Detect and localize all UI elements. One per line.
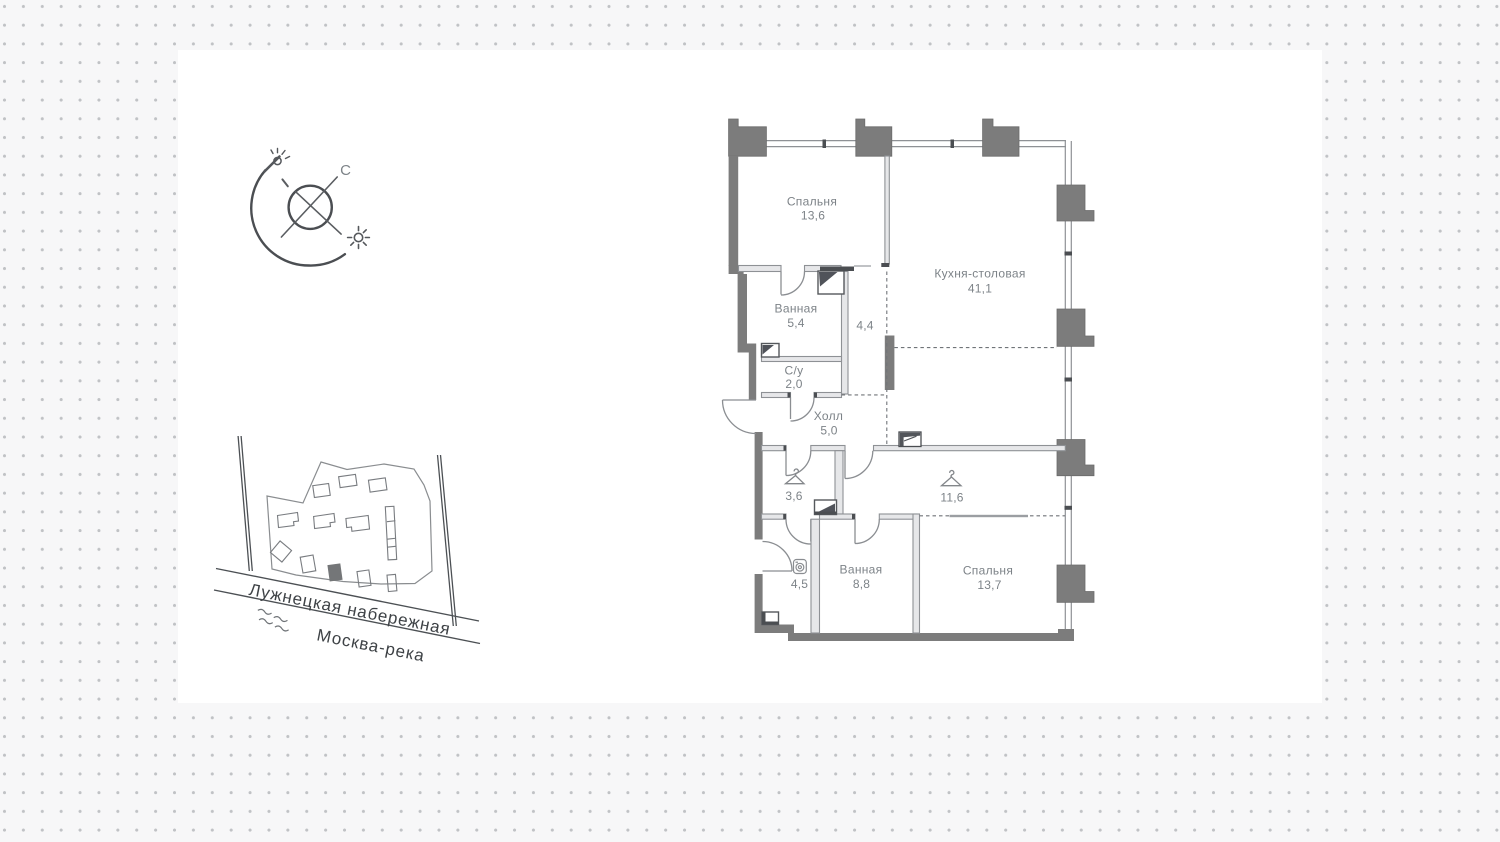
- svg-text:Спальня: Спальня: [787, 195, 837, 209]
- svg-text:13,6: 13,6: [801, 209, 825, 223]
- svg-text:41,1: 41,1: [968, 282, 992, 296]
- svg-text:Холл: Холл: [814, 409, 843, 423]
- svg-text:Спальня: Спальня: [963, 564, 1013, 578]
- svg-text:8,8: 8,8: [853, 577, 870, 591]
- svg-text:Ванная: Ванная: [840, 563, 883, 577]
- svg-text:2,0: 2,0: [785, 377, 802, 391]
- svg-text:3,6: 3,6: [785, 489, 802, 503]
- svg-text:4,4: 4,4: [856, 319, 873, 333]
- svg-text:С: С: [340, 162, 351, 179]
- svg-text:5,0: 5,0: [820, 424, 837, 438]
- svg-text:Кухня-столовая: Кухня-столовая: [934, 267, 1025, 281]
- svg-text:4,5: 4,5: [791, 577, 808, 591]
- svg-text:С/у: С/у: [785, 364, 804, 378]
- svg-text:11,6: 11,6: [940, 491, 963, 505]
- svg-text:13,7: 13,7: [977, 578, 1001, 592]
- svg-text:Ванная: Ванная: [775, 302, 818, 316]
- svg-text:5,4: 5,4: [787, 316, 804, 330]
